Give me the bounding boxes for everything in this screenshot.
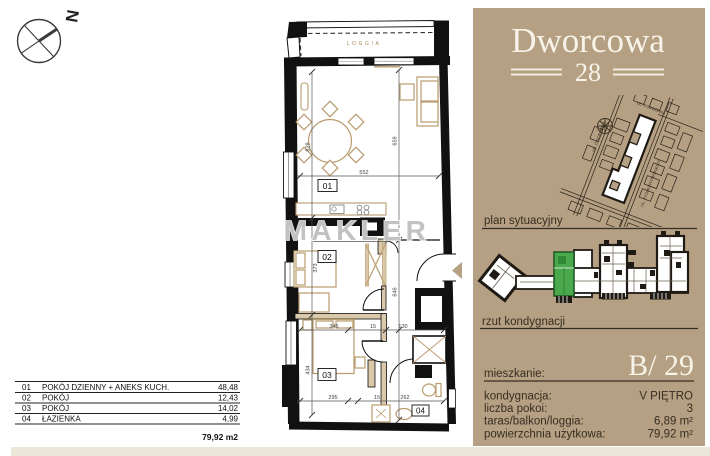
svg-text:POKÓJ DZIENNY + ANEKS KUCH.: POKÓJ DZIENNY + ANEKS KUCH. — [42, 383, 169, 392]
svg-text:6,89 m²: 6,89 m² — [654, 416, 693, 428]
svg-text:Dworcowa: Dworcowa — [511, 21, 665, 60]
svg-text:48,48: 48,48 — [218, 383, 239, 392]
svg-text:POKÓJ: POKÓJ — [42, 394, 69, 403]
svg-text:295: 295 — [328, 395, 337, 401]
svg-text:552: 552 — [359, 170, 368, 176]
svg-text:04: 04 — [22, 415, 31, 424]
svg-text:434: 434 — [306, 365, 312, 374]
svg-text:4,99: 4,99 — [222, 415, 238, 424]
svg-text:powierzchnia użytkowa:: powierzchnia użytkowa: — [484, 429, 605, 441]
svg-text:14,02: 14,02 — [218, 404, 239, 413]
svg-text:130: 130 — [398, 324, 407, 330]
svg-text:POKÓJ: POKÓJ — [42, 404, 69, 413]
svg-text:01: 01 — [323, 181, 333, 191]
svg-text:3: 3 — [687, 403, 693, 415]
svg-text:liczba pokoi:: liczba pokoi: — [484, 403, 547, 415]
svg-text:346: 346 — [329, 324, 338, 330]
svg-text:04: 04 — [416, 407, 425, 416]
svg-text:kondygnacja:: kondygnacja: — [484, 391, 552, 403]
svg-text:B/ 29: B/ 29 — [628, 349, 694, 382]
svg-text:LOGGIA: LOGGIA — [347, 41, 382, 47]
svg-text:MAKLER: MAKLER — [284, 215, 431, 246]
svg-text:mieszkanie:: mieszkanie: — [484, 368, 545, 380]
svg-text:829: 829 — [306, 142, 312, 151]
svg-text:ŁAZIENKA: ŁAZIENKA — [42, 415, 81, 424]
svg-text:262: 262 — [400, 395, 409, 401]
svg-text:plan sytuacyjny: plan sytuacyjny — [484, 215, 563, 227]
svg-text:79,92 m2: 79,92 m2 — [202, 432, 238, 442]
svg-text:646: 646 — [393, 287, 399, 296]
svg-text:15: 15 — [370, 324, 376, 330]
svg-text:01: 01 — [22, 383, 31, 392]
svg-text:28: 28 — [575, 58, 601, 87]
svg-text:taras/balkon/loggia:: taras/balkon/loggia: — [484, 416, 584, 428]
svg-text:02: 02 — [322, 252, 332, 262]
svg-text:03: 03 — [322, 370, 332, 380]
svg-text:02: 02 — [22, 394, 31, 403]
svg-text:659: 659 — [393, 136, 399, 145]
svg-text:N: N — [62, 8, 83, 23]
svg-text:79,92 m²: 79,92 m² — [648, 429, 694, 441]
svg-text:373: 373 — [313, 263, 319, 272]
svg-text:12,43: 12,43 — [218, 394, 239, 403]
svg-text:15: 15 — [374, 395, 380, 401]
svg-text:V PIĘTRO: V PIĘTRO — [639, 391, 693, 403]
svg-text:rzut kondygnacji: rzut kondygnacji — [482, 316, 565, 328]
svg-text:03: 03 — [22, 404, 31, 413]
